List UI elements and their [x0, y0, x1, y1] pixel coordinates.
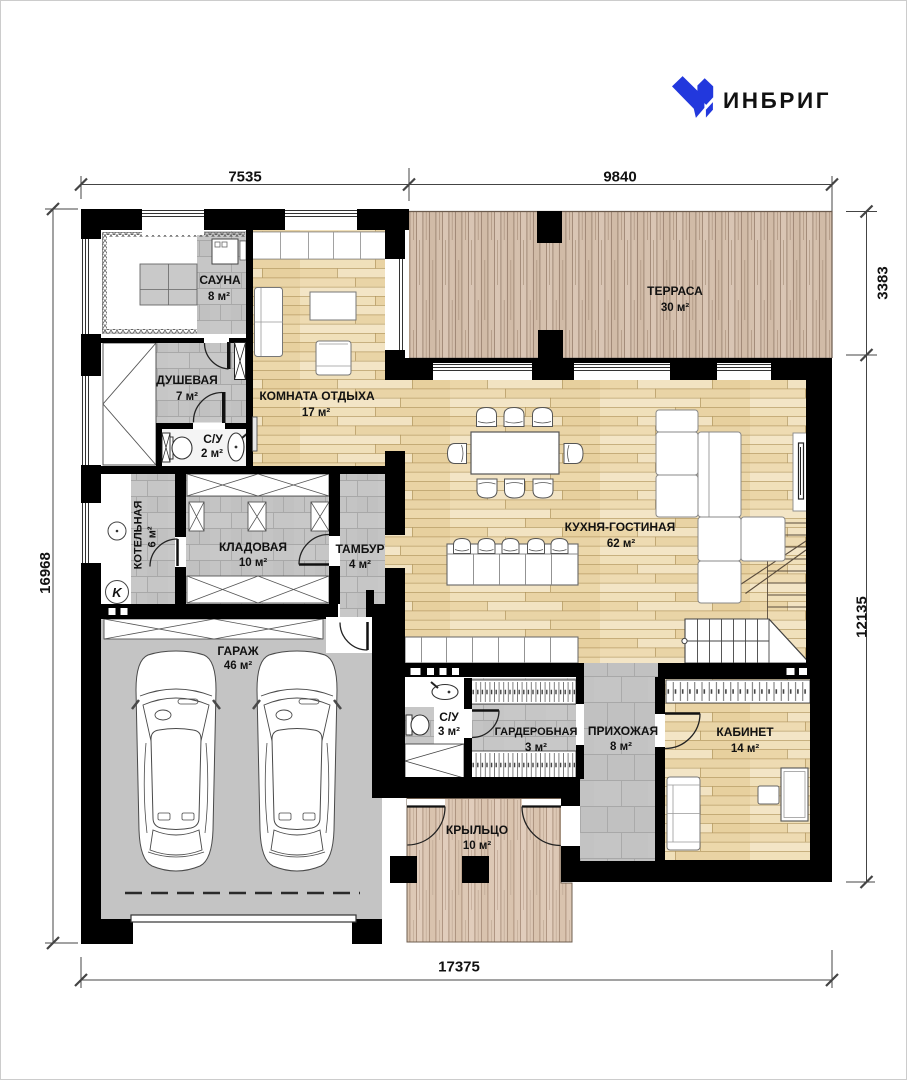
svg-text:КОМНАТА ОТДЫХА: КОМНАТА ОТДЫХА	[259, 389, 375, 403]
svg-text:62 м²: 62 м²	[607, 538, 635, 550]
svg-text:9840: 9840	[603, 169, 636, 186]
svg-text:ПРИХОЖАЯ: ПРИХОЖАЯ	[588, 724, 658, 738]
svg-text:17375: 17375	[438, 959, 480, 976]
svg-text:КРЫЛЬЦО: КРЫЛЬЦО	[446, 823, 508, 837]
svg-text:3 м²: 3 м²	[438, 726, 460, 738]
svg-text:2 м²: 2 м²	[201, 448, 223, 460]
svg-text:12135: 12135	[854, 596, 871, 638]
svg-text:ТЕРРАСА: ТЕРРАСА	[647, 284, 703, 298]
svg-text:8 м²: 8 м²	[610, 741, 632, 753]
svg-text:6 м²: 6 м²	[147, 526, 159, 547]
svg-text:3 м²: 3 м²	[525, 742, 547, 754]
svg-text:ГАРАЖ: ГАРАЖ	[217, 644, 258, 658]
svg-text:С/У: С/У	[439, 710, 459, 724]
svg-text:7535: 7535	[228, 169, 261, 186]
svg-text:КОТЕЛЬНАЯ: КОТЕЛЬНАЯ	[133, 501, 145, 570]
svg-text:КАБИНЕТ: КАБИНЕТ	[716, 725, 774, 739]
svg-text:10 м²: 10 м²	[239, 557, 267, 569]
svg-text:16968: 16968	[37, 552, 54, 594]
svg-text:КУХНЯ-ГОСТИНАЯ: КУХНЯ-ГОСТИНАЯ	[565, 520, 676, 534]
svg-text:30 м²: 30 м²	[661, 302, 689, 314]
svg-text:САУНА: САУНА	[199, 273, 241, 287]
svg-text:ТАМБУР: ТАМБУР	[335, 542, 384, 556]
svg-text:14 м²: 14 м²	[731, 743, 759, 755]
svg-text:4 м²: 4 м²	[349, 559, 371, 571]
svg-text:K: K	[112, 585, 123, 600]
svg-text:С/У: С/У	[203, 432, 223, 446]
svg-text:10 м²: 10 м²	[463, 840, 491, 852]
svg-text:46 м²: 46 м²	[224, 660, 252, 672]
svg-text:КЛАДОВАЯ: КЛАДОВАЯ	[219, 540, 287, 554]
svg-text:ДУШЕВАЯ: ДУШЕВАЯ	[156, 373, 218, 387]
svg-text:3383: 3383	[875, 266, 892, 299]
svg-text:ГАРДЕРОБНАЯ: ГАРДЕРОБНАЯ	[495, 726, 578, 738]
svg-text:17 м²: 17 м²	[302, 407, 330, 419]
svg-text:7 м²: 7 м²	[176, 391, 198, 403]
svg-text:ИНБРИГ: ИНБРИГ	[723, 88, 831, 113]
svg-text:8 м²: 8 м²	[208, 291, 230, 303]
